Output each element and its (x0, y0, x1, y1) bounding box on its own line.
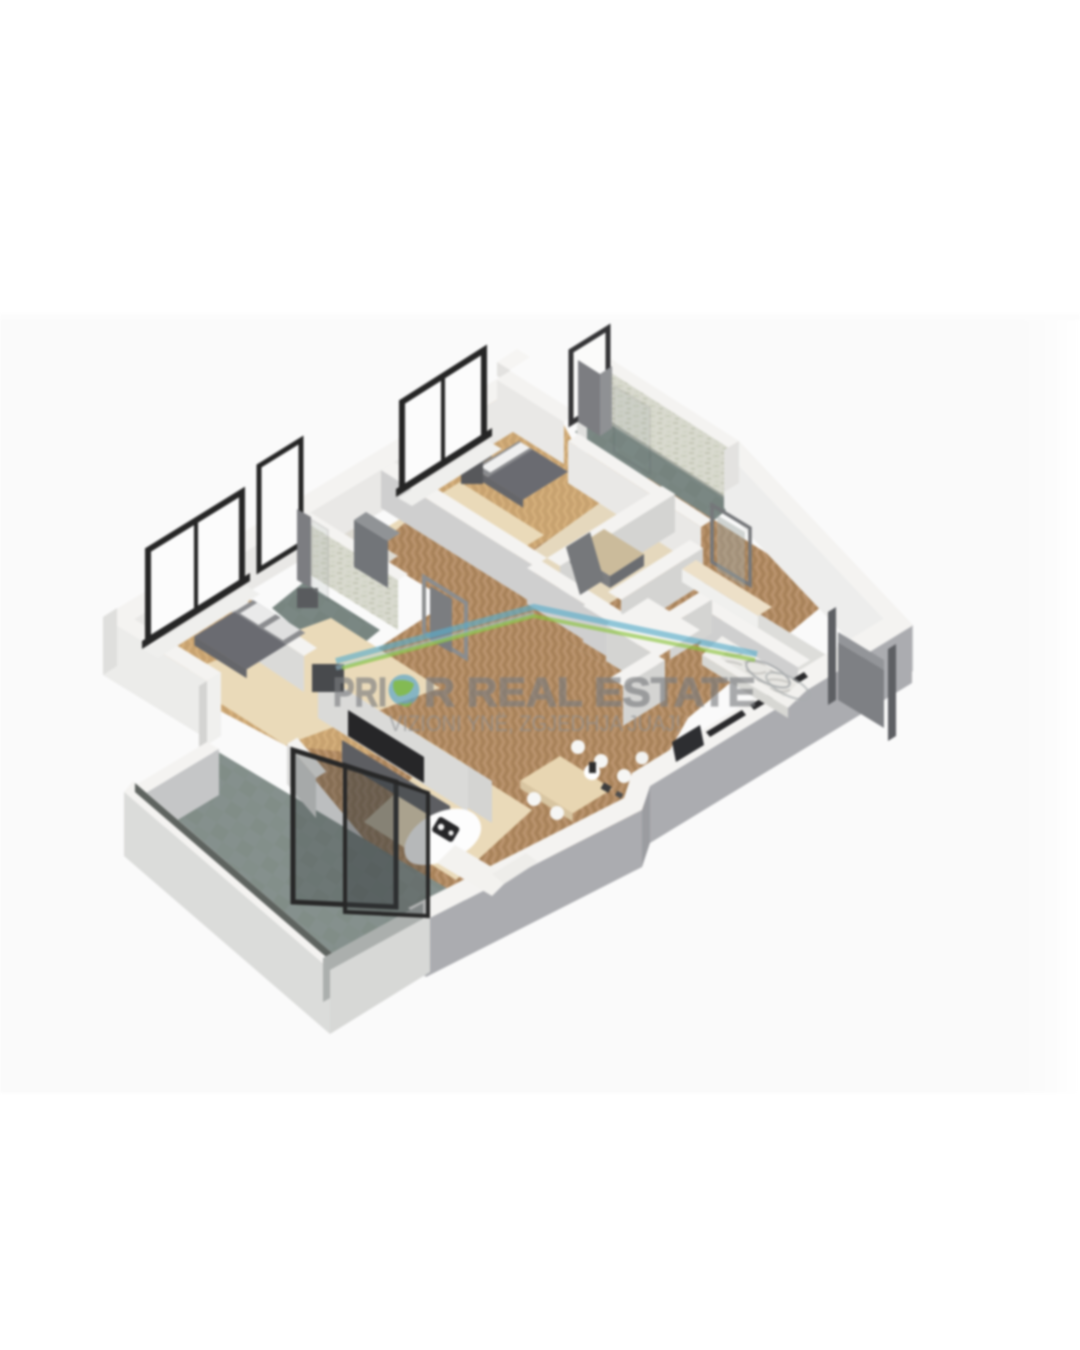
svg-text:PRI: PRI (333, 669, 387, 715)
svg-text:VIZIONI YNË, ZGJEDHJA JUAJ!: VIZIONI YNË, ZGJEDHJA JUAJ! (389, 711, 681, 736)
svg-text:R REAL ESTATE: R REAL ESTATE (424, 669, 756, 715)
